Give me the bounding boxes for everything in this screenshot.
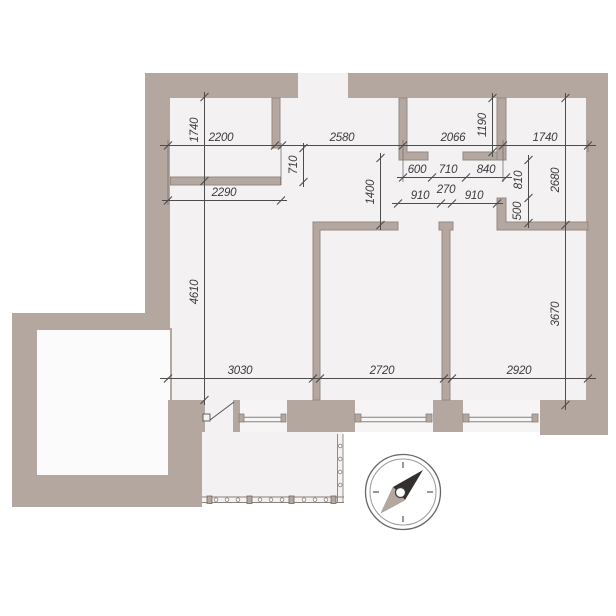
dim-label-room3-depth: 3670 bbox=[550, 301, 562, 327]
wall-balcony-left bbox=[168, 432, 202, 476]
door-hinge bbox=[203, 414, 210, 421]
balcony-floor bbox=[202, 432, 343, 503]
dim-label-room2-width: 2720 bbox=[369, 365, 396, 377]
dim-label-bedroom-door: 810 bbox=[513, 170, 525, 189]
compass-hub bbox=[396, 488, 406, 498]
adjacent-space-border bbox=[170, 328, 172, 402]
window-recess-room2 bbox=[355, 400, 433, 432]
wall-top-left bbox=[145, 73, 298, 98]
dim-label-seg-840: 840 bbox=[477, 164, 496, 176]
dim-label-room3-width: 2920 bbox=[506, 365, 533, 377]
wall-left-room-bottom bbox=[171, 177, 281, 185]
dim-label-living-depth: 4610 bbox=[189, 279, 201, 305]
wall-left bbox=[145, 98, 170, 330]
adjacent-space bbox=[37, 330, 170, 475]
dim-label-bedroom-depth: 2680 bbox=[550, 167, 562, 194]
window-recess-room3 bbox=[463, 400, 540, 432]
dim-label-niche-width: 2066 bbox=[440, 132, 467, 144]
wall-bottom-c bbox=[287, 400, 355, 432]
window-recess-living bbox=[240, 400, 287, 432]
wall-ext-bottom bbox=[12, 475, 202, 507]
dim-label-seg-600: 600 bbox=[408, 164, 427, 176]
floor-plan-canvas: 1740 2200 2580 2066 1740 1190 710 2290 6… bbox=[0, 0, 616, 616]
compass-rose-icon bbox=[366, 455, 441, 530]
dim-label-door-room3: 910 bbox=[465, 190, 484, 202]
dim-label-hall-depth: 1400 bbox=[365, 179, 377, 205]
floor-plan-drawing: 1740 2200 2580 2066 1740 1190 710 2290 6… bbox=[0, 0, 616, 616]
dim-label-seg-710: 710 bbox=[439, 164, 458, 176]
dim-label-left-room-width: 2200 bbox=[208, 132, 235, 144]
dim-label-closet-width: 2290 bbox=[211, 187, 238, 199]
dim-label-living-width: 3030 bbox=[228, 365, 254, 377]
entrance-threshold bbox=[298, 73, 348, 98]
wall-bottom-d bbox=[433, 400, 463, 432]
dim-label-niche-return: 500 bbox=[512, 201, 524, 220]
dim-label-door-room2: 910 bbox=[411, 190, 430, 202]
dim-label-niche-depth: 1190 bbox=[477, 112, 489, 137]
dim-label-left-room-depth: 1740 bbox=[189, 117, 201, 143]
wall-bottom-a bbox=[168, 400, 205, 432]
dim-label-left-door-width: 710 bbox=[288, 155, 300, 174]
wall-bedroom-left bbox=[497, 98, 506, 160]
wall-stub-left-room bbox=[272, 98, 280, 148]
wall-right bbox=[586, 98, 608, 435]
dim-label-pier-width: 270 bbox=[436, 184, 456, 196]
dim-label-hall-top-width: 2580 bbox=[329, 132, 356, 144]
dim-label-bedroom-top-width: 1740 bbox=[533, 132, 559, 144]
wall-ext-top bbox=[12, 313, 170, 330]
wall-bottom-e bbox=[540, 400, 608, 435]
